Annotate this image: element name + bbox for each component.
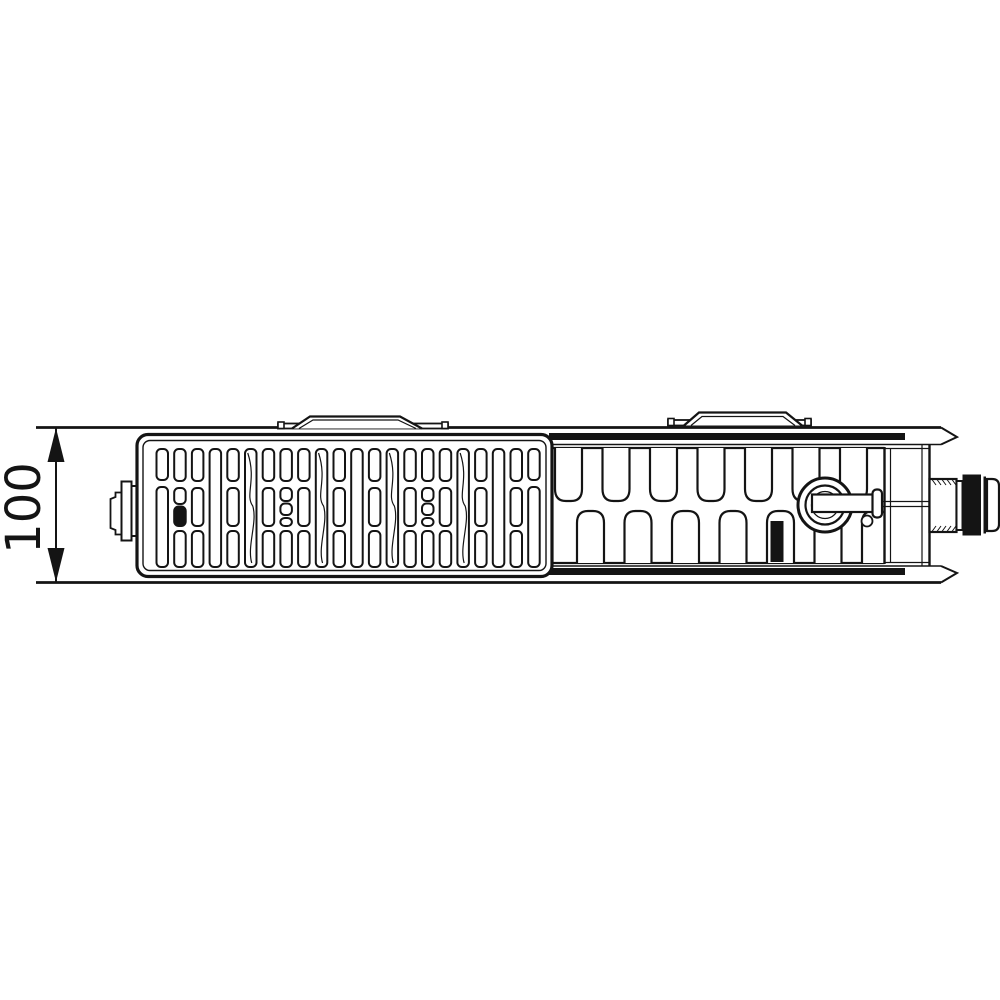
grille-slot [280,531,292,567]
bracket-end-tab [442,422,448,429]
grille-slot [404,531,416,567]
grille-slot-dark [174,507,186,527]
front-panel [111,435,553,577]
grille-slot [157,449,169,480]
dimension-label: 100 [0,462,52,554]
radiator-top-view-drawing: 100 [0,0,1000,1000]
fin-fold-top [698,448,725,501]
connection-fitting [930,475,1000,536]
band-top-bar [549,433,905,440]
valve-flange-disc [873,490,883,518]
mounting-bracket-left [278,417,448,429]
grille-slot [422,449,434,481]
end-tip-top [941,428,957,445]
grille-slot [280,488,292,501]
grille-slot [493,449,505,567]
valve-cylinder [812,495,873,513]
grille-slot [475,488,487,526]
grille-slot [422,531,434,567]
fitting-collar [957,481,963,530]
thread-body [930,479,957,532]
grille-slot [210,449,222,567]
knob-end-cap [987,479,999,531]
vent-plug-body [122,482,132,541]
grille-slot [511,531,523,567]
grille-slot [174,488,186,504]
grille-slot [174,531,186,567]
vent-plug-tip [111,493,122,535]
fin-fold-bottom [720,511,747,563]
fin-fold-top [650,448,677,501]
grille-slot [157,487,169,567]
grille-slot [440,531,452,567]
grille-slot [440,488,452,526]
fin-fold-top [745,448,772,501]
grille-slot [422,518,434,526]
grille-slot [404,449,416,481]
grille-slot [511,449,523,481]
grille-slot [475,531,487,567]
dimension-arrow-up [48,428,65,462]
grille-slot [528,449,540,480]
grille-slot [174,449,186,481]
grille-slot [298,488,310,526]
grille-slot [369,449,381,481]
drawing-canvas: 100 [0,0,1000,1000]
grille-slot [369,488,381,526]
grille-slot [511,488,523,526]
fin-fold-top [555,448,582,501]
fin-fold-bottom [577,511,604,563]
grille-slot [192,488,204,526]
fin-fold-bottom [625,511,652,563]
grille-slot [263,488,275,526]
dimension-annotation: 100 [0,428,65,582]
grille-slot [351,449,363,567]
grille-slot [263,531,275,567]
grille-slot [404,488,416,526]
grille-slot [422,488,434,501]
grille-slot [280,449,292,481]
grille-slot [280,518,292,526]
fin-fold-top [603,448,630,501]
grille-slot [440,449,452,481]
grille-slot [528,487,540,567]
grille-slot [227,531,239,567]
fin-fold-bottom [672,511,699,563]
band-bottom-bar [549,568,905,575]
grille-slot [298,531,310,567]
end-tip-bottom [941,566,957,583]
return-header [885,445,930,566]
weld-tab [771,521,784,562]
bracket-end-tab [805,419,811,426]
grille-slot [334,488,346,526]
grille-slot [263,449,275,481]
knob-ring [984,477,987,534]
bracket-end-tab [278,422,284,429]
grille-slot [192,449,204,481]
grille-slot [280,504,292,516]
valve-pin [862,516,873,527]
grille-slot [192,531,204,567]
mounting-bracket-right [668,413,811,426]
valve-knob-black [963,475,982,536]
grille-slot [369,531,381,567]
grille-slot [334,531,346,567]
bracket-raised-profile [684,413,802,426]
grille-slot [227,449,239,481]
grille-slot [475,449,487,481]
bracket-end-tab [668,419,674,426]
grille-slot [422,504,434,516]
grille-slot [334,449,346,481]
grille-slot [298,449,310,481]
grille-slot [227,488,239,526]
